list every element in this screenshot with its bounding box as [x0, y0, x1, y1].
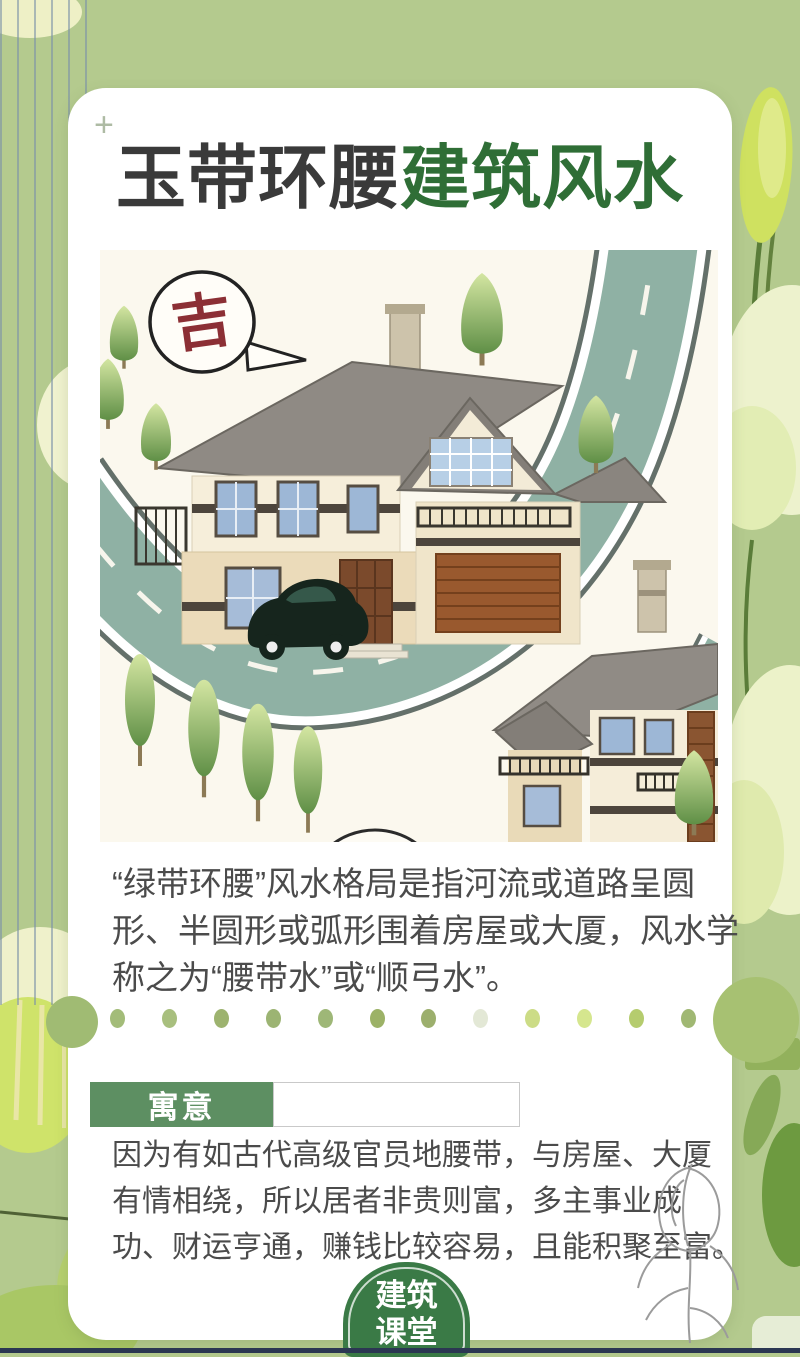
dot	[214, 1009, 229, 1028]
description-paragraph: “绿带环腰”风水格局是指河流或道路呈圆 形、半圆形或弧形围着房屋或大厦，风水学 …	[112, 860, 739, 1001]
meaning-label: 寓意	[90, 1082, 273, 1127]
poster-card: + 玉带环腰建筑风水	[68, 88, 732, 1340]
dots-row	[110, 1008, 696, 1028]
page-title: 玉带环腰建筑风水	[68, 122, 732, 223]
feng-shui-illustration: 吉	[100, 250, 718, 842]
title-part-dark: 玉带环腰	[116, 141, 400, 218]
dot	[577, 1009, 592, 1028]
dot	[473, 1009, 488, 1028]
title-part-green: 建筑风水	[400, 141, 684, 218]
dot	[318, 1009, 333, 1028]
dot	[525, 1009, 540, 1028]
dot	[629, 1009, 644, 1028]
paragraph-line: 称之为“腰带水”或“顺弓水”。	[112, 954, 739, 1001]
auspicious-character: 吉	[168, 286, 237, 360]
badge-line1: 建筑	[343, 1277, 470, 1314]
dot	[110, 1009, 125, 1028]
brand-badge: 建筑 课堂	[343, 1262, 470, 1357]
left-circle-accent	[46, 996, 98, 1048]
dot	[266, 1009, 281, 1028]
flower-line-art-icon	[632, 1158, 744, 1350]
paragraph-line: 形、半圆形或弧形围着房屋或大厦，风水学	[112, 907, 739, 954]
paragraph-line: “绿带环腰”风水格局是指河流或道路呈圆	[112, 860, 739, 907]
badge-line2: 课堂	[343, 1314, 470, 1351]
meaning-label-extension	[273, 1082, 520, 1127]
dot	[421, 1009, 436, 1028]
big-circle-accent	[713, 977, 799, 1063]
meaning-section-header: 寓意	[90, 1082, 520, 1127]
dot	[162, 1009, 177, 1028]
dot	[681, 1009, 696, 1028]
bottom-strip	[0, 1348, 800, 1353]
dot	[370, 1009, 385, 1028]
